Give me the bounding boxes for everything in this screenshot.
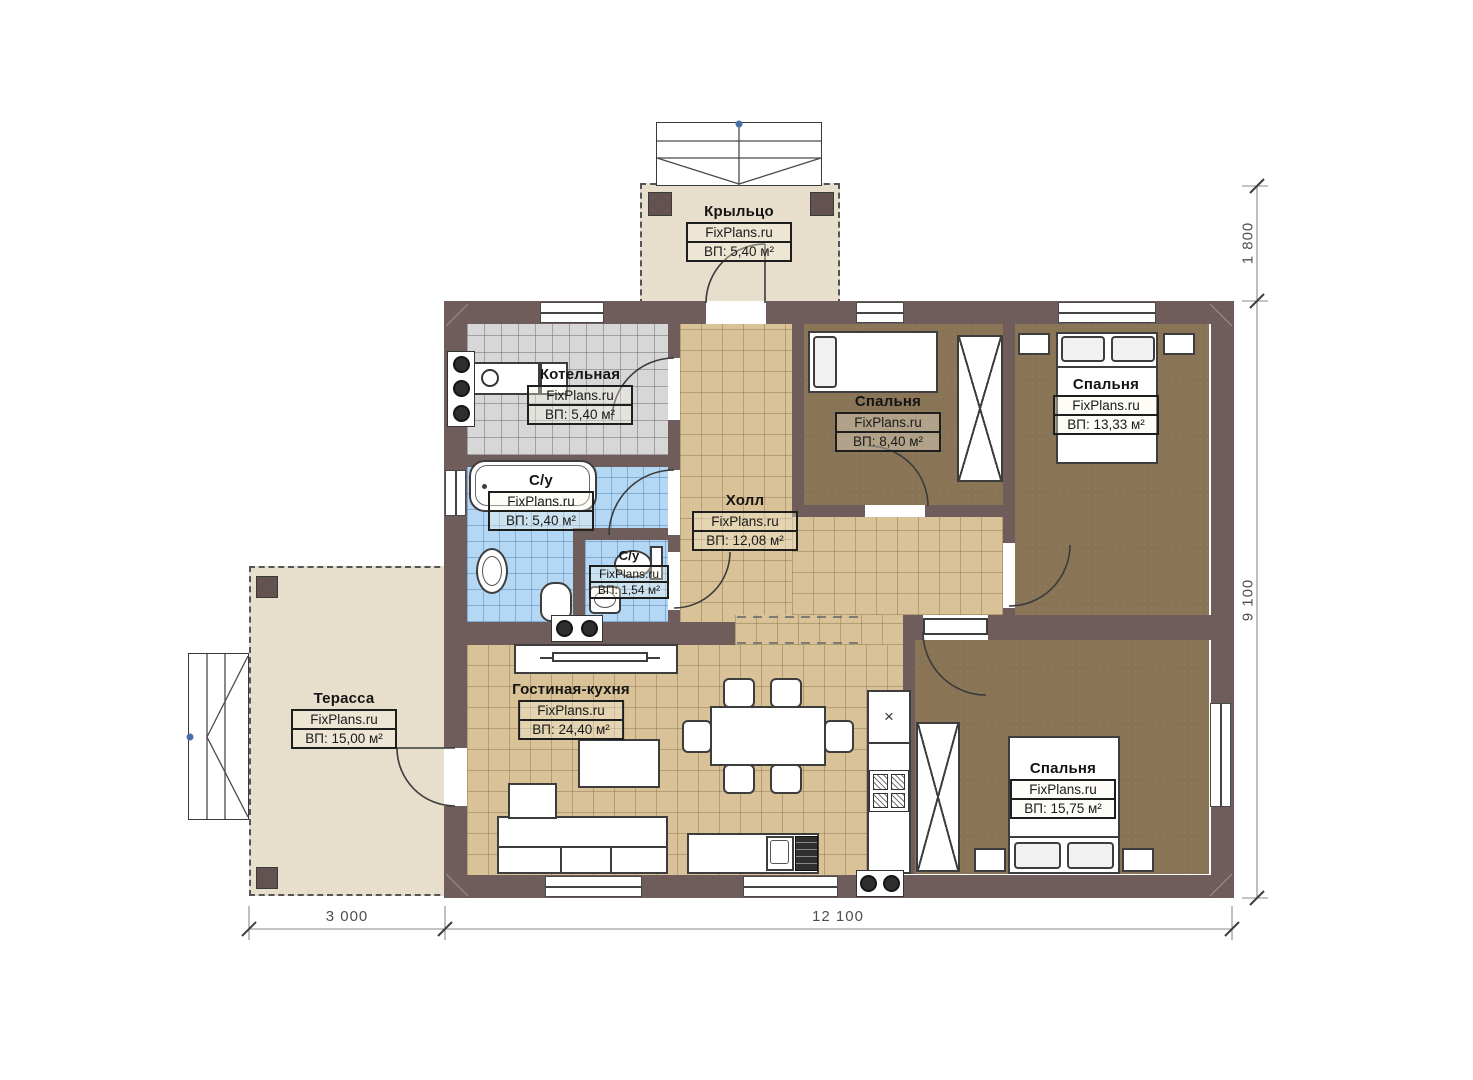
room-area: ВП: 24,40 м² <box>520 719 622 738</box>
bedroom2-door-arc <box>1009 545 1070 606</box>
room-label-porch: Крыльцо FixPlans.ru ВП: 5,40 м² <box>686 203 792 262</box>
room-name: Крыльцо <box>704 203 774 220</box>
corner-hatch-br <box>1210 874 1232 896</box>
room-info-box: FixPlans.ru ВП: 15,75 м² <box>1010 779 1116 819</box>
room-name: С/у <box>529 472 553 489</box>
dimension-lines <box>249 186 1268 940</box>
dim-label-house-side: 9 100 <box>1240 579 1257 622</box>
room-name: Спальня <box>1073 376 1139 393</box>
terrace-stair-diag-bottom <box>207 737 248 817</box>
room-area: ВП: 8,40 м² <box>837 431 939 450</box>
room-info-box: FixPlans.ru ВП: 12,08 м² <box>692 511 798 551</box>
room-label-boiler: Котельная FixPlans.ru ВП: 5,40 м² <box>527 366 633 425</box>
brand-watermark: FixPlans.ru <box>1012 781 1114 798</box>
room-name: Гостиная-кухня <box>512 681 630 698</box>
room-info-box: FixPlans.ru ВП: 5,40 м² <box>527 385 633 425</box>
room-info-box: FixPlans.ru ВП: 13,33 м² <box>1053 395 1159 435</box>
room-label-living-kitchen: Гостиная-кухня FixPlans.ru ВП: 24,40 м² <box>512 681 630 740</box>
bedroom3-door-arc <box>923 632 986 695</box>
room-info-box: FixPlans.ru ВП: 15,00 м² <box>291 709 397 749</box>
room-area: ВП: 5,40 м² <box>529 404 631 423</box>
porch-stair-diag-left <box>657 158 739 184</box>
room-area: ВП: 5,40 м² <box>688 241 790 260</box>
dim-label-porch-depth: 1 800 <box>1240 222 1257 265</box>
room-name: Спальня <box>1030 760 1096 777</box>
terrace-stair-marker <box>187 734 194 741</box>
floorplan-canvas: × <box>0 0 1473 1080</box>
brand-watermark: FixPlans.ru <box>293 711 395 728</box>
room-label-bathroom: С/у FixPlans.ru ВП: 5,40 м² <box>488 472 594 531</box>
brand-watermark: FixPlans.ru <box>591 567 667 581</box>
brand-watermark: FixPlans.ru <box>1055 397 1157 414</box>
brand-watermark: FixPlans.ru <box>837 414 939 431</box>
porch-stair-diag-right <box>739 158 821 184</box>
dim-label-house-width: 12 100 <box>812 908 864 925</box>
room-info-box: FixPlans.ru ВП: 1,54 м² <box>589 565 669 599</box>
room-info-box: FixPlans.ru ВП: 5,40 м² <box>686 222 792 262</box>
brand-watermark: FixPlans.ru <box>688 224 790 241</box>
terrace-door-arc <box>397 748 455 806</box>
room-info-box: FixPlans.ru ВП: 5,40 м² <box>488 491 594 531</box>
porch-stair-marker <box>736 121 743 128</box>
dimension-ticks <box>242 179 1264 936</box>
wc-door-arc <box>674 552 730 608</box>
room-name: Холл <box>726 492 764 509</box>
room-label-wc: С/у FixPlans.ru ВП: 1,54 м² <box>589 548 669 599</box>
room-info-box: FixPlans.ru ВП: 8,40 м² <box>835 412 941 452</box>
open-passage-dashes <box>737 617 863 643</box>
dim-label-terrace-width: 3 000 <box>326 908 369 925</box>
room-area: ВП: 15,75 м² <box>1012 798 1114 817</box>
room-label-bedroom2: Спальня FixPlans.ru ВП: 13,33 м² <box>1053 376 1159 435</box>
room-info-box: FixPlans.ru ВП: 24,40 м² <box>518 700 624 740</box>
room-name: Терасса <box>314 690 375 707</box>
corner-hatch-bl <box>446 874 468 896</box>
brand-watermark: FixPlans.ru <box>529 387 631 404</box>
room-label-terrace: Терасса FixPlans.ru ВП: 15,00 м² <box>291 690 397 749</box>
corner-hatch-tr <box>1210 304 1232 326</box>
terrace-stair-diag-top <box>207 656 248 737</box>
room-label-bedroom1: Спальня FixPlans.ru ВП: 8,40 м² <box>835 393 941 452</box>
room-area: ВП: 1,54 м² <box>591 581 667 597</box>
room-name: С/у <box>619 548 640 563</box>
bathroom-door-arc <box>609 470 674 535</box>
room-name: Спальня <box>855 393 921 410</box>
room-name: Котельная <box>540 366 620 383</box>
room-area: ВП: 13,33 м² <box>1055 414 1157 433</box>
brand-watermark: FixPlans.ru <box>490 493 592 510</box>
brand-watermark: FixPlans.ru <box>694 513 796 530</box>
room-area: ВП: 12,08 м² <box>694 530 796 549</box>
room-label-hall: Холл FixPlans.ru ВП: 12,08 м² <box>692 492 798 551</box>
room-area: ВП: 5,40 м² <box>490 510 592 529</box>
room-area: ВП: 15,00 м² <box>293 728 395 747</box>
bedroom1-door-arc <box>868 446 928 506</box>
corner-hatch-tl <box>446 304 468 326</box>
room-label-bedroom3: Спальня FixPlans.ru ВП: 15,75 м² <box>1010 760 1116 819</box>
brand-watermark: FixPlans.ru <box>520 702 622 719</box>
